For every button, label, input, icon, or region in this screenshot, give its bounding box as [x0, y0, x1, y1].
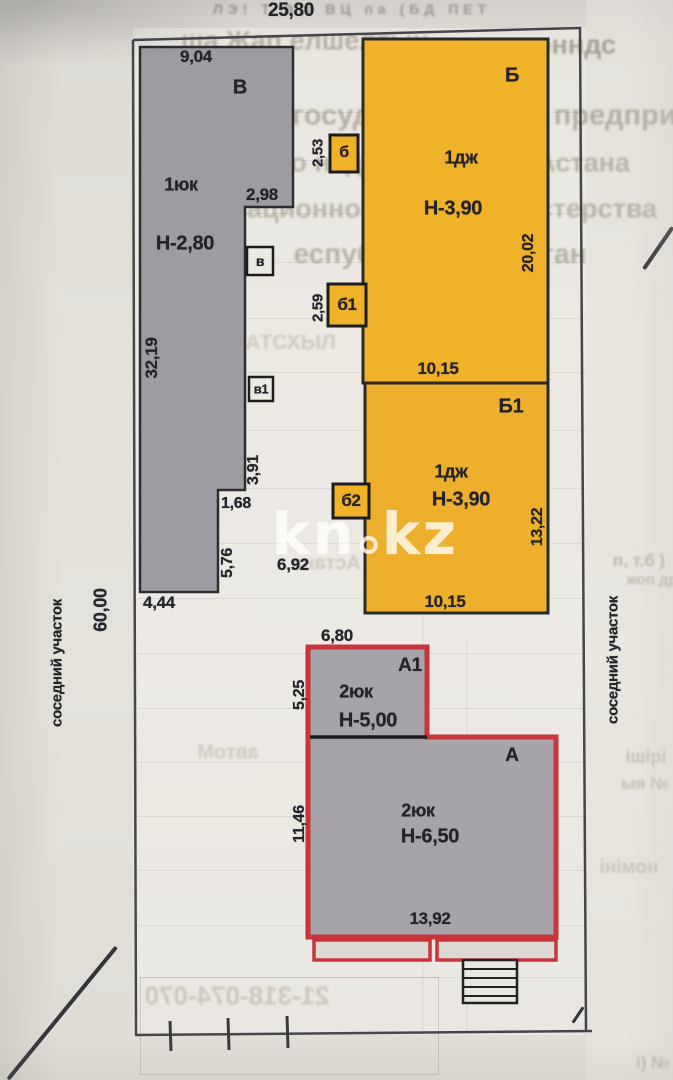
dim-b1-bottom: 10,15	[424, 592, 465, 612]
building-v-shape	[140, 47, 293, 592]
stairs-shape	[463, 960, 517, 1003]
dim-v-576: 5,76	[219, 548, 237, 578]
label-annex-b1: б1	[337, 295, 356, 315]
label-annex-b: б	[339, 144, 349, 162]
dim-a1-top: 6,80	[321, 626, 353, 646]
label-neighbor-left: соседний участок	[49, 599, 66, 727]
dim-b-right: 20,02	[520, 234, 538, 273]
dim-b-bottom: 10,15	[417, 359, 458, 379]
label-b1-floors: 1дж	[434, 462, 467, 483]
label-building-b1: Б1	[499, 396, 524, 419]
label-annex-v1: в1	[254, 382, 269, 397]
scanned-site-plan-page: ЛЭ! Т Э / ВЦ па (БД ПЕТ ша Жап елшелтын …	[0, 0, 673, 1080]
plot-boundary-left	[133, 40, 136, 1035]
dim-v-step: 2,98	[246, 185, 278, 205]
dim-a-left: 11,46	[291, 805, 309, 843]
label-a1-height: Н-5,00	[339, 710, 397, 733]
dim-plot-width: 25,80	[268, 0, 314, 22]
label-neighbor-right: соседний участок	[605, 596, 622, 724]
porch-right-shape	[437, 940, 556, 960]
plot-boundary-bottom	[135, 1031, 592, 1035]
boundary-tick	[287, 1016, 288, 1048]
watermark-dot-icon	[360, 536, 378, 554]
label-annex-v: в	[256, 253, 264, 269]
kn-kz-watermark: kn kz	[272, 500, 458, 568]
dim-v-391: 3,91	[245, 455, 263, 485]
label-building-b: Б	[505, 65, 519, 88]
label-b-height: Н-3,90	[424, 198, 482, 221]
watermark-part2: kz	[382, 500, 458, 568]
dim-v-left: 32,19	[142, 337, 162, 378]
label-a-height: Н-6,50	[401, 826, 459, 849]
dim-annex-b: 2,53	[310, 139, 327, 167]
label-building-a1: А1	[398, 655, 422, 677]
dim-b1-right: 13,22	[529, 508, 547, 547]
boundary-tick	[170, 1021, 171, 1051]
boundary-tick	[228, 1018, 229, 1050]
label-b-floors: 1дж	[444, 148, 477, 169]
dim-v-168: 1,68	[221, 495, 251, 513]
dim-a-bottom: 13,92	[409, 909, 450, 929]
dim-a1-left: 5,25	[291, 680, 309, 710]
label-v-height: Н-2,80	[156, 233, 214, 256]
dim-annex-b1: 2,59	[310, 294, 327, 322]
label-a1-floors: 2юк	[339, 682, 373, 703]
porch-left-shape	[314, 940, 430, 960]
dim-plot-height: 60,00	[91, 588, 112, 632]
label-a-floors: 2юк	[401, 801, 435, 822]
label-building-v: В	[233, 77, 247, 100]
label-v-floors: 1юк	[164, 175, 198, 196]
label-building-a: А	[505, 745, 518, 767]
watermark-part1: kn	[272, 500, 356, 568]
dim-v-top: 9,04	[180, 47, 212, 67]
dim-v-bottom: 4,44	[143, 593, 175, 613]
